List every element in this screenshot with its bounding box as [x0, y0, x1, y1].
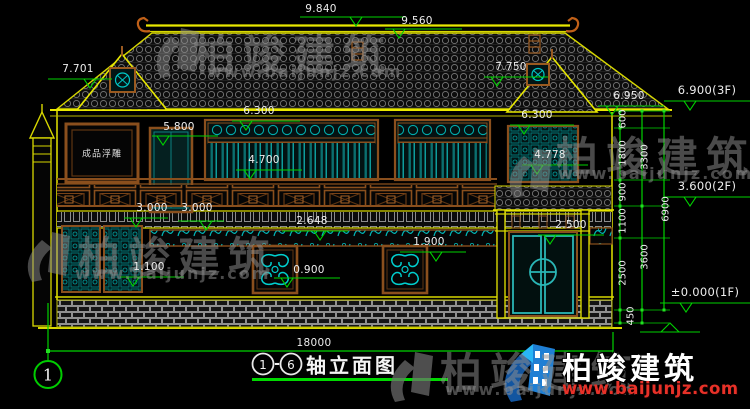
dim-scroll-panel: 0.900 [293, 264, 325, 276]
watermark-url: www.baijunjz.com [207, 62, 402, 81]
dim-bay-b: 3.000 [181, 202, 213, 214]
scroll-panel-2 [383, 246, 427, 293]
dim-panel-right: 1.900 [413, 236, 445, 248]
relief-panel-label: 成品浮雕 [82, 147, 122, 160]
vdim-600: 600 [618, 109, 629, 128]
vdim-6900: 6900 [661, 196, 672, 221]
vdim-900: 900 [618, 182, 629, 201]
dim-eave-right: 6.950 [613, 90, 645, 102]
vdim-3300: 3300 [640, 144, 651, 169]
dim-win-2f: 4.700 [248, 154, 280, 166]
title-dash: - [274, 356, 280, 372]
watermark-url: www.baijunjz.com [75, 264, 270, 283]
cad-elevation-screenshot: 柏竣建筑 www.baijunjz.com 柏竣建筑 www.baijunjz.… [0, 0, 750, 409]
dim-win-wing: 4.778 [534, 149, 566, 161]
porch-column-left [497, 210, 505, 318]
dim-ridge-left: 9.840 [305, 3, 337, 15]
vdim-450: 450 [626, 306, 637, 325]
axis-bubble-number: 1 [43, 366, 53, 385]
vdim-1100: 1100 [618, 208, 629, 233]
dim-porch: 2.648 [296, 215, 328, 227]
brand-logo-url: www.baijunjz.com [562, 379, 739, 398]
dim-total-width: 18000 [297, 337, 332, 349]
dim-gable-left: 7.701 [62, 63, 94, 75]
drawing-title: 轴立面图 [306, 350, 398, 379]
vdim-3600: 3600 [640, 244, 651, 269]
balcony-railing [57, 185, 497, 206]
title-end-axis: 6 [287, 358, 295, 372]
level-3f: 6.900(3F) [678, 83, 737, 97]
dim-panel-left: 1.100 [133, 261, 165, 273]
dim-win-band-right: 6.300 [521, 109, 553, 121]
level-1f: ±0.000(1F) [671, 285, 739, 299]
dim-door-2f: 5.800 [163, 121, 195, 133]
dim-bay-a: 3.000 [136, 202, 168, 214]
dim-gable-right: 7.750 [495, 61, 527, 73]
dim-win-band-left: 6.300 [243, 105, 275, 117]
title-start-axis: 1 [259, 358, 267, 372]
entry-door [509, 232, 577, 316]
level-2f: 3.600(2F) [678, 179, 737, 193]
dim-entry-door: 2.500 [555, 219, 587, 231]
vdim-1800: 1800 [618, 140, 629, 165]
dim-ridge-right: 9.560 [401, 15, 433, 27]
left-tower [30, 104, 54, 326]
vdim-2500: 2500 [618, 260, 629, 285]
